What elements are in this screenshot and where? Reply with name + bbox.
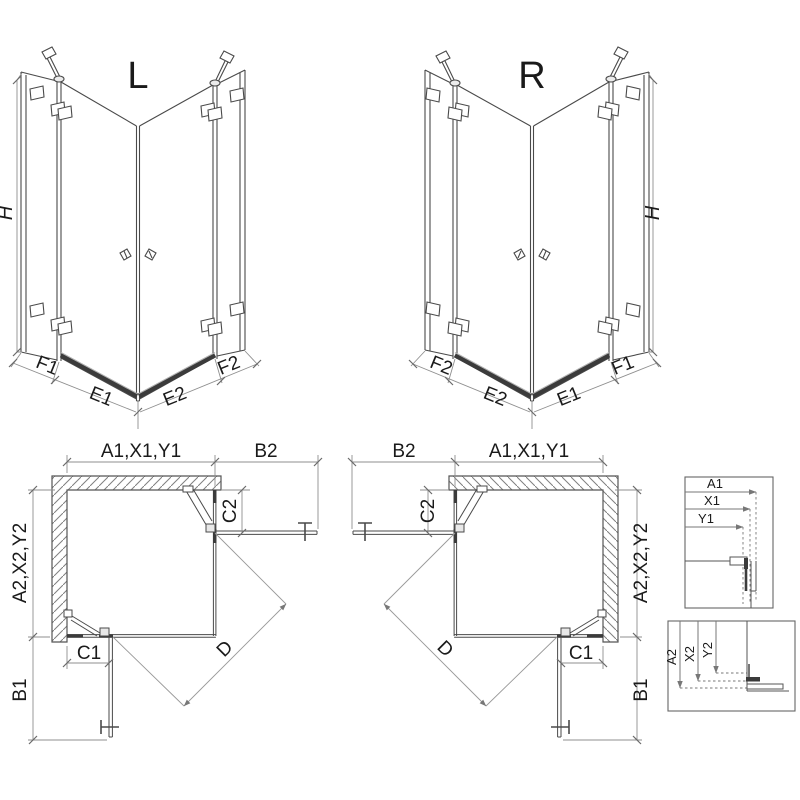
dim-label-h-left: H <box>0 205 17 220</box>
dim-label-b1-right: B1 <box>631 678 652 701</box>
variant-label-left: L <box>127 55 148 97</box>
detail-label-x2: X2 <box>682 646 697 662</box>
dim-label-c1-right: C1 <box>569 643 593 664</box>
dim-label-b1-left: B1 <box>10 678 31 701</box>
detail-label-a1: A1 <box>707 476 723 491</box>
detail-label-x1: X1 <box>704 493 720 508</box>
dim-label-a1x1y1-right: A1,X1,Y1 <box>489 441 569 462</box>
dim-label-b2-left: B2 <box>254 441 277 462</box>
variant-label-right: R <box>518 55 545 97</box>
shower-enclosure-dimension-sheet: L H F1 E1 E2 F2 R H F2 E2 E1 F1 A1,X1,Y1… <box>0 0 800 800</box>
detail-label-y1: Y1 <box>698 511 714 526</box>
dim-label-c2-left: C2 <box>220 499 241 523</box>
dim-label-h-right: H <box>642 205 664 220</box>
dim-label-a1x1y1-left: A1,X1,Y1 <box>101 441 181 462</box>
dim-label-a2x2y2-right: A2,X2,Y2 <box>631 523 652 603</box>
dim-label-b2-right: B2 <box>392 441 415 462</box>
detail-label-y2: Y2 <box>700 642 715 658</box>
dim-label-a2x2y2-left: A2,X2,Y2 <box>10 523 31 603</box>
dim-label-c2-right: C2 <box>418 499 439 523</box>
technical-drawing: L H F1 E1 E2 F2 R H F2 E2 E1 F1 A1,X1,Y1… <box>0 0 800 800</box>
dim-label-c1-left: C1 <box>77 643 101 664</box>
detail-label-a2: A2 <box>664 649 679 665</box>
